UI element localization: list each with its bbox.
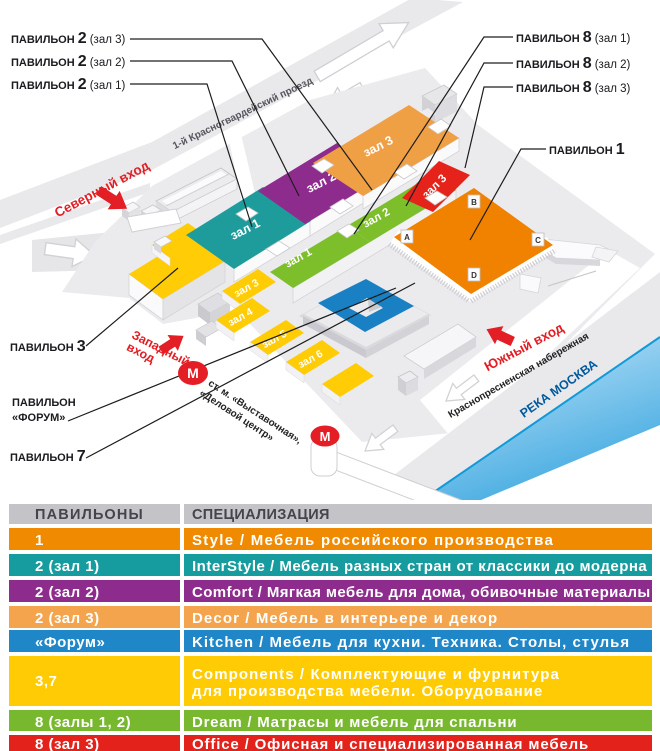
svg-text:С: С xyxy=(535,236,541,245)
svg-text:«Форум»: «Форум» xyxy=(35,634,105,651)
svg-text:Office / Офисная и специализир: Office / Офисная и специализированная ме… xyxy=(192,736,589,751)
svg-text:Components / Комплектующие и ф: Components / Комплектующие и фурнитура xyxy=(192,666,560,683)
svg-text:2 (зал 3): 2 (зал 3) xyxy=(35,610,100,627)
svg-text:InterStyle / Мебель разных стр: InterStyle / Мебель разных стран от клас… xyxy=(192,558,647,575)
svg-text:8 (зал 3): 8 (зал 3) xyxy=(35,736,100,751)
svg-text:Dream / Матрасы и мебель для с: Dream / Матрасы и мебель для спальни xyxy=(192,714,517,731)
svg-text:2 (зал 2): 2 (зал 2) xyxy=(35,584,100,601)
svg-text:3,7: 3,7 xyxy=(35,673,57,690)
svg-text:Comfort / Мягкая мебель для до: Comfort / Мягкая мебель для дома, обивоч… xyxy=(192,584,651,601)
svg-text:Style / Мебель российского про: Style / Мебель российского производства xyxy=(192,532,554,549)
svg-text:Decor / Мебель в интерьере и д: Decor / Мебель в интерьере и декор xyxy=(192,610,498,627)
svg-text:«ФОРУМ»: «ФОРУМ» xyxy=(12,412,65,424)
svg-text:А: А xyxy=(404,233,410,242)
svg-text:2 (зал 1): 2 (зал 1) xyxy=(35,558,100,575)
svg-text:Kitchen / Мебель для кухни. Те: Kitchen / Мебель для кухни. Техника. Сто… xyxy=(192,634,630,651)
svg-text:ПАВИЛЬОНЫ: ПАВИЛЬОНЫ xyxy=(35,507,144,523)
svg-text:СПЕЦИАЛИЗАЦИЯ: СПЕЦИАЛИЗАЦИЯ xyxy=(192,507,330,523)
svg-text:для производства мебели. Обору: для производства мебели. Оборудование xyxy=(192,683,543,700)
svg-text:М: М xyxy=(320,429,331,444)
svg-text:ПАВИЛЬОН: ПАВИЛЬОН xyxy=(12,397,76,409)
svg-text:1: 1 xyxy=(35,532,43,549)
svg-text:D: D xyxy=(471,271,477,280)
svg-text:8 (залы 1, 2): 8 (залы 1, 2) xyxy=(35,714,131,731)
svg-text:В: В xyxy=(471,198,477,207)
svg-text:М: М xyxy=(187,365,199,381)
